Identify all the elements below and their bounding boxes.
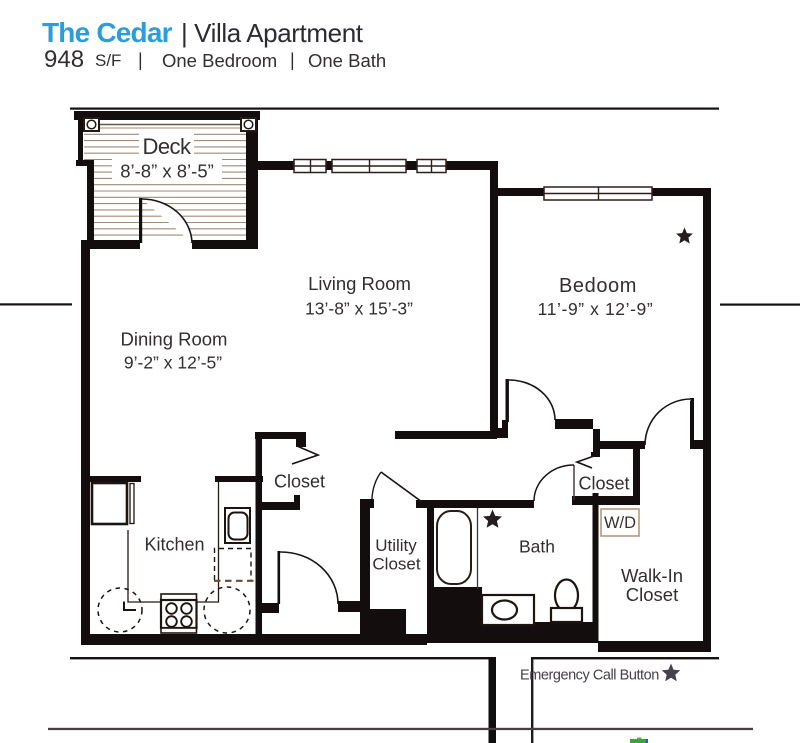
svg-text:Dining Room: Dining Room — [121, 329, 228, 350]
svg-text:|: | — [138, 50, 143, 70]
svg-text:Utility: Utility — [375, 536, 417, 555]
svg-text:The Cedar: The Cedar — [42, 17, 173, 48]
svg-text:Closet: Closet — [274, 472, 325, 492]
svg-text:Kitchen: Kitchen — [144, 535, 204, 555]
svg-text:11’-9” x 12’-9”: 11’-9” x 12’-9” — [538, 299, 654, 319]
svg-text:9’-2” x 12’-5”: 9’-2” x 12’-5” — [124, 353, 222, 373]
svg-text:948: 948 — [44, 46, 84, 73]
svg-text:Closet: Closet — [626, 584, 678, 605]
svg-text:One Bedroom: One Bedroom — [162, 50, 277, 71]
svg-text:Closet: Closet — [578, 474, 629, 494]
svg-text:|: | — [290, 50, 295, 70]
svg-text:One Bath: One Bath — [308, 50, 386, 71]
svg-text:13’-8” x 15’-3”: 13’-8” x 15’-3” — [305, 299, 413, 319]
svg-text:Walk-In: Walk-In — [621, 565, 683, 586]
svg-text:| Villa Apartment: | Villa Apartment — [181, 18, 364, 48]
svg-text:8’-8” x 8’-5”: 8’-8” x 8’-5” — [120, 161, 214, 182]
svg-text:Bath: Bath — [519, 537, 555, 557]
svg-text:Bedoom: Bedoom — [559, 275, 637, 297]
svg-text:W/D: W/D — [604, 514, 636, 532]
svg-text:S/F: S/F — [95, 51, 121, 70]
svg-text:Closet: Closet — [372, 555, 420, 574]
svg-text:Emergency Call Button: Emergency Call Button — [520, 668, 659, 684]
svg-text:Living Room: Living Room — [308, 273, 411, 294]
svg-text:Deck: Deck — [142, 134, 192, 159]
